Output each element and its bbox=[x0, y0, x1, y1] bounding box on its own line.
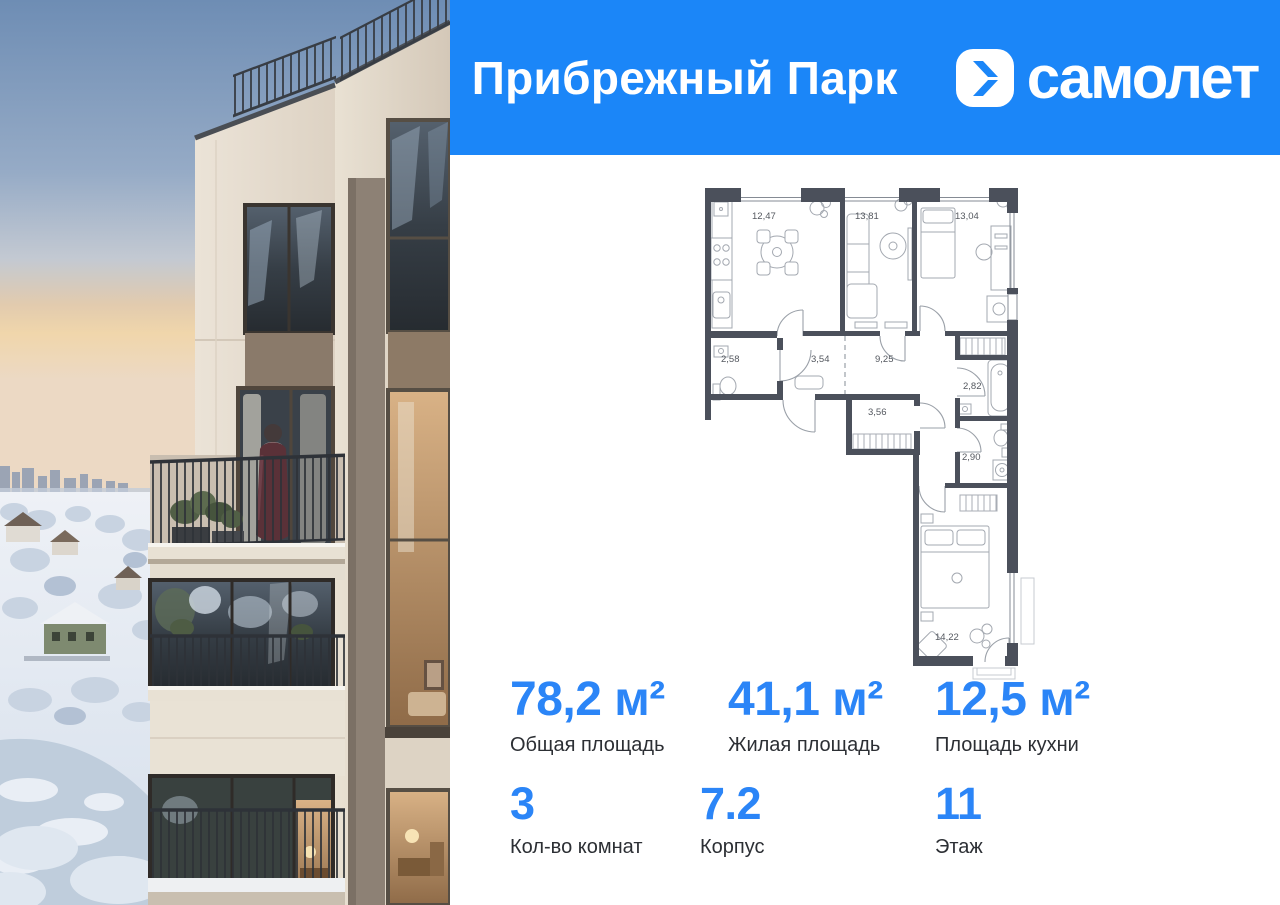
stat-floor-number-value: 11 bbox=[935, 781, 983, 826]
upper-window bbox=[245, 205, 333, 333]
info-panel: Прибрежный Парк самолет bbox=[450, 0, 1280, 905]
samolet-logo-icon bbox=[956, 49, 1014, 107]
stat-floor-number-label: Этаж bbox=[935, 836, 983, 859]
floor-plan-drawing: 12,47 13,81 13,04 2,58 3,54 9,25 2,82 3,… bbox=[705, 188, 1040, 682]
room-area-label: 13,81 bbox=[855, 211, 879, 222]
room-area-label: 3,54 bbox=[811, 354, 830, 365]
stat-total-area-value: 78,2 м² bbox=[510, 676, 665, 724]
balcony-level-3 bbox=[148, 776, 345, 905]
stat-building-number-value: 7.2 bbox=[700, 781, 765, 826]
room-area-label: 2,90 bbox=[962, 452, 981, 463]
stat-rooms-count-value: 3 bbox=[510, 781, 642, 826]
spandrel bbox=[245, 333, 333, 388]
room-area-label: 13,04 bbox=[955, 211, 979, 222]
samolet-logo: самолет bbox=[956, 48, 1259, 108]
stat-living-area-value: 41,1 м² bbox=[728, 676, 883, 724]
stat-rooms-count: 3 Кол-во комнат bbox=[510, 781, 642, 859]
room-area-label: 9,25 bbox=[875, 354, 894, 365]
stat-living-area: 41,1 м² Жилая площадь bbox=[728, 676, 883, 757]
header-bar: Прибрежный Парк самолет bbox=[450, 0, 1280, 155]
stat-total-area: 78,2 м² Общая площадь bbox=[510, 676, 665, 757]
building-photo bbox=[0, 0, 450, 905]
room-area-label: 3,56 bbox=[868, 407, 887, 418]
balcony-level-2 bbox=[148, 580, 345, 701]
stat-rooms-count-label: Кол-во комнат bbox=[510, 836, 642, 859]
room-area-label: 2,58 bbox=[721, 354, 740, 365]
stat-floor-number: 11 Этаж bbox=[935, 781, 983, 859]
stat-living-area-label: Жилая площадь bbox=[728, 734, 883, 757]
room-area-label: 12,47 bbox=[752, 211, 776, 222]
apartment-card: Прибрежный Парк самолет bbox=[0, 0, 1280, 905]
facade-band bbox=[150, 564, 345, 580]
back-window-column bbox=[385, 120, 450, 905]
building-photo-art bbox=[0, 0, 450, 905]
stat-total-area-label: Общая площадь bbox=[510, 734, 665, 757]
brand-name: самолет bbox=[1027, 48, 1259, 108]
stat-building-number: 7.2 Корпус bbox=[700, 781, 765, 859]
project-title: Прибрежный Парк bbox=[472, 51, 898, 105]
stat-kitchen-area-label: Площадь кухни bbox=[935, 734, 1090, 757]
stat-kitchen-area-value: 12,5 м² bbox=[935, 676, 1090, 724]
floor-plan: 12,47 13,81 13,04 2,58 3,54 9,25 2,82 3,… bbox=[705, 188, 1040, 682]
room-area-label: 2,82 bbox=[963, 381, 982, 392]
stat-building-number-label: Корпус bbox=[700, 836, 765, 859]
room-area-label: 14,22 bbox=[935, 632, 959, 643]
stat-kitchen-area: 12,5 м² Площадь кухни bbox=[935, 676, 1090, 757]
